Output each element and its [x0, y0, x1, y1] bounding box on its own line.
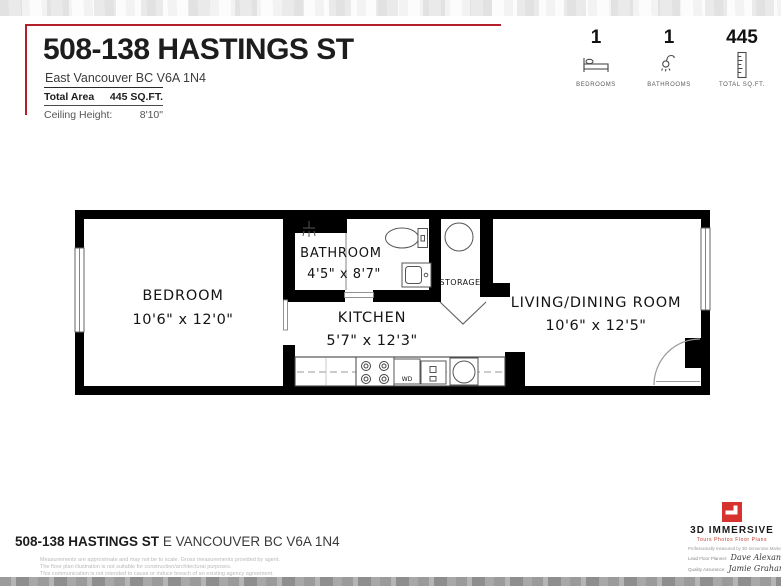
- disclaimer-line: Measurements are approximate and may not…: [40, 557, 280, 564]
- ruler-icon: [709, 51, 775, 79]
- summary-stats: 1 BEDROOMS 1 BATHROOMS 445: [563, 27, 775, 88]
- bedrooms-label: BEDROOMS: [563, 82, 629, 88]
- bedroom-dimensions: 10'6" x 12'0": [133, 312, 234, 328]
- kitchen-label: KITCHEN: [338, 310, 406, 326]
- fact-ceiling-height: Ceiling Height: 8'10": [44, 106, 163, 123]
- storage-door-chevron: [440, 302, 486, 324]
- bathrooms-label: BATHROOMS: [636, 82, 702, 88]
- lead-floor-planner-row: Lead Floor Planner: Dave Alexander: [688, 553, 776, 562]
- living-dining-label: LIVING/DINING ROOM: [511, 295, 682, 311]
- logo-measured-by: Professionally measured by 3D Immersive …: [688, 546, 776, 551]
- bed-icon: [563, 51, 629, 79]
- shower-icon: [636, 51, 702, 79]
- logo-tagline: Tours Photos Floor Plans: [688, 537, 776, 543]
- red-bracket-horizontal: [25, 24, 501, 26]
- quality-assurance-row: Quality Assurance: Jamie Graham: [688, 564, 776, 573]
- storage-label: STORAGE: [440, 278, 481, 287]
- page-subtitle: East Vancouver BC V6A 1N4: [45, 71, 206, 85]
- lead-floor-planner-signature: Dave Alexander: [731, 553, 781, 562]
- quality-assurance-label: Quality Assurance:: [688, 567, 726, 572]
- stat-bathrooms: 1 BATHROOMS: [636, 27, 702, 88]
- bathroom-dimensions: 4'5" x 8'7": [307, 267, 381, 282]
- fact-label: Ceiling Height:: [44, 109, 112, 121]
- kitchen-dimensions: 5'7" x 12'3": [326, 333, 417, 349]
- disclaimer-text: Measurements are approximate and may not…: [40, 557, 280, 578]
- bedroom-door: [284, 300, 288, 330]
- washer-dryer-icon: WD: [394, 359, 420, 384]
- bathrooms-count: 1: [636, 27, 702, 49]
- footer-address-street: 508-138 HASTINGS ST: [15, 534, 159, 549]
- bathroom-door: [345, 293, 374, 298]
- total-sqft-label: TOTAL SQ.FT.: [709, 82, 775, 88]
- page: { "header": { "title": "508-138 HASTINGS…: [0, 0, 781, 586]
- fact-total-area: Total Area 445 SQ.FT.: [44, 87, 163, 106]
- bedroom-label: BEDROOM: [142, 288, 223, 304]
- quality-assurance-signature: Jamie Graham: [729, 564, 781, 573]
- bedroom-window: [75, 248, 84, 332]
- toilet-icon: [386, 228, 428, 248]
- dishwasher-icon: [421, 361, 446, 384]
- bathroom-label: BATHROOM: [300, 246, 382, 261]
- water-tank-icon: [445, 223, 473, 251]
- red-bracket-vertical: [25, 24, 27, 115]
- stove-icon: [356, 357, 394, 386]
- bedrooms-count: 1: [563, 27, 629, 49]
- footer-address: 508-138 HASTINGS ST E VANCOUVER BC V6A 1…: [15, 534, 340, 549]
- stat-bedrooms: 1 BEDROOMS: [563, 27, 629, 88]
- stat-total-sqft: 445 TOTAL SQ.FT.: [709, 27, 775, 88]
- top-watermark-band: [0, 0, 781, 16]
- facts-table: Total Area 445 SQ.FT. Ceiling Height: 8'…: [44, 87, 163, 123]
- living-room-window: [701, 228, 710, 310]
- logo-icon: [722, 502, 742, 522]
- washer-dryer-label: WD: [402, 376, 413, 383]
- lead-floor-planner-label: Lead Floor Planner:: [688, 556, 728, 561]
- bottom-watermark-band: [0, 577, 781, 586]
- page-title: 508-138 HASTINGS ST: [43, 33, 354, 67]
- fact-label: Total Area: [44, 91, 94, 103]
- floor-plan: WD BEDROOM 10'6" x 12'0" BATHROOM 4'5" x…: [60, 195, 720, 415]
- fact-value: 445 SQ.FT.: [110, 91, 163, 103]
- total-sqft-count: 445: [709, 27, 775, 49]
- footer-address-city: E VANCOUVER BC V6A 1N4: [159, 534, 340, 549]
- disclaimer-line: The floor plan illustration is not suita…: [40, 564, 280, 571]
- kitchen-sink-icon: [450, 358, 478, 385]
- bathroom-sink-icon: [402, 263, 431, 287]
- company-logo: 3D IMMERSIVE Tours Photos Floor Plans Pr…: [688, 502, 776, 573]
- fact-value: 8'10": [140, 109, 163, 121]
- logo-name: 3D IMMERSIVE: [688, 525, 776, 536]
- living-dining-dimensions: 10'6" x 12'5": [546, 318, 647, 334]
